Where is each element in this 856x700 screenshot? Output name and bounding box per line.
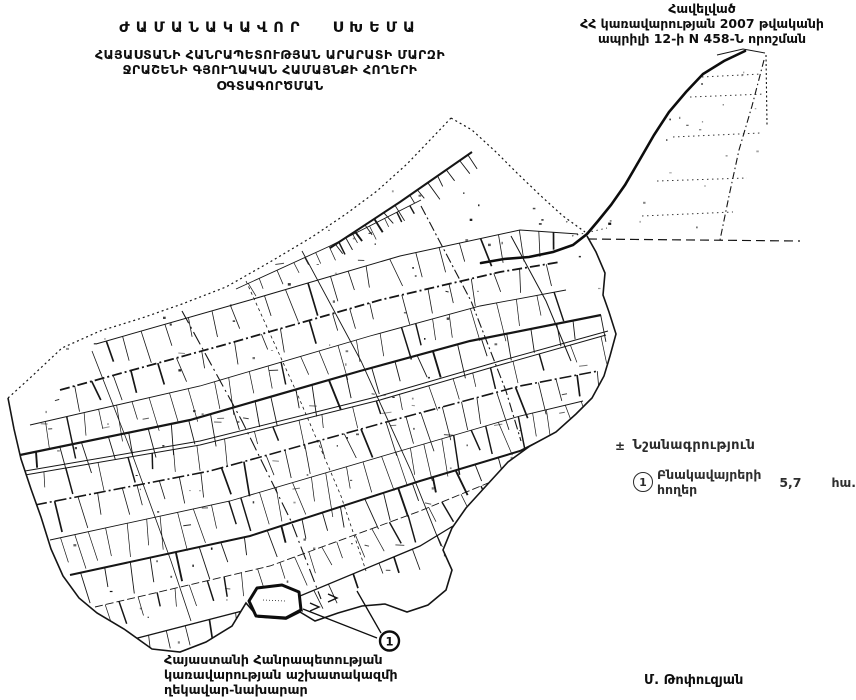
signatory-org: Հայաստանի Հանրապետության կառավարության ա…: [164, 653, 398, 698]
signatory-org-line-1: Հայաստանի Հանրապետության: [164, 653, 398, 668]
leader-line: [303, 609, 377, 638]
legend-item-area: 5,7: [779, 475, 801, 490]
legend-bullet-icon: ±: [615, 439, 625, 453]
community-boundary-ne: [451, 118, 585, 232]
leader-line: [357, 591, 381, 633]
chevron-icon: [310, 603, 319, 611]
panhandle-right-edge: [766, 55, 767, 125]
river-line: [481, 51, 745, 263]
parcel-marker-number: 1: [385, 635, 393, 649]
panhandle-diagonal-edge: [720, 60, 764, 240]
legend-item-label: Բնակավայրերի հողեր: [657, 467, 774, 497]
allocated-parcel: [249, 585, 301, 618]
scanned-map-document: { "document": { "appendix_note": { "line…: [0, 0, 856, 700]
map-texture: [16, 51, 765, 650]
map-features: 1: [8, 49, 800, 652]
cadastral-map: 1: [0, 0, 856, 700]
legend-header: ± Նշանագրություն: [615, 438, 755, 453]
signatory-org-line-3: ղեկավար-նախարար: [164, 683, 398, 698]
signatory-name: Մ. Թոփուզյան: [644, 673, 743, 688]
legend-item-allocated-parcel: 1 Բնակավայրերի հողեր 5,7 հա.: [633, 467, 856, 497]
signatory-org-line-2: կառավարության աշխատակազմի: [164, 668, 398, 683]
legend-item-unit: հա.: [831, 475, 856, 490]
south-panhandle-dashed-line: [588, 239, 800, 241]
legend-marker-1: 1: [633, 472, 653, 492]
legend-header-label: Նշանագրություն: [632, 438, 755, 453]
community-boundary-nw: [8, 118, 451, 398]
